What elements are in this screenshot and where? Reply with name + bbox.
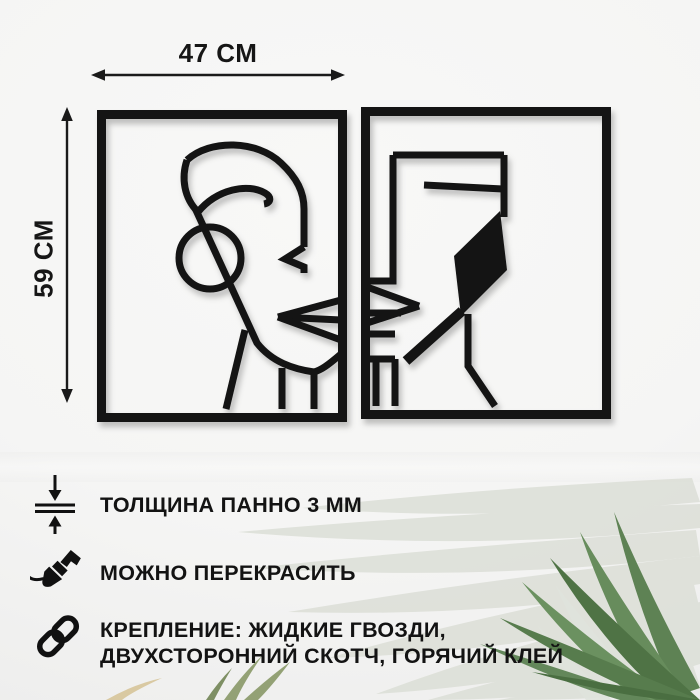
feature-text-mounting-line1: КРЕПЛЕНИЕ: ЖИДКИЕ ГВОЗДИ, [100, 617, 563, 643]
paintbrush-icon [30, 545, 84, 599]
width-dimension-label: 47 СМ [90, 38, 346, 69]
thickness-icon [33, 473, 77, 535]
chain-link-icon [34, 613, 82, 661]
right-face-panel [361, 107, 611, 419]
feature-text-thickness: ТОЛЩИНА ПАННО 3 ММ [100, 492, 362, 518]
tan-leaf-tip-icon [106, 678, 162, 700]
left-face-panel [97, 110, 347, 422]
feature-text-mounting: КРЕПЛЕНИЕ: ЖИДКИЕ ГВОЗДИ, ДВУХСТОРОННИЙ … [100, 617, 563, 669]
height-dimension-label: 59 СМ [29, 209, 60, 309]
product-photo: 47 СМ 59 СМ [0, 0, 700, 700]
width-dimension-arrow [90, 66, 346, 84]
height-dimension-arrow [58, 106, 76, 404]
feature-text-mounting-line2: ДВУХСТОРОННИЙ СКОТЧ, ГОРЯЧИЙ КЛЕЙ [100, 643, 563, 669]
feature-text-repaint: МОЖНО ПЕРЕКРАСИТЬ [100, 560, 356, 586]
